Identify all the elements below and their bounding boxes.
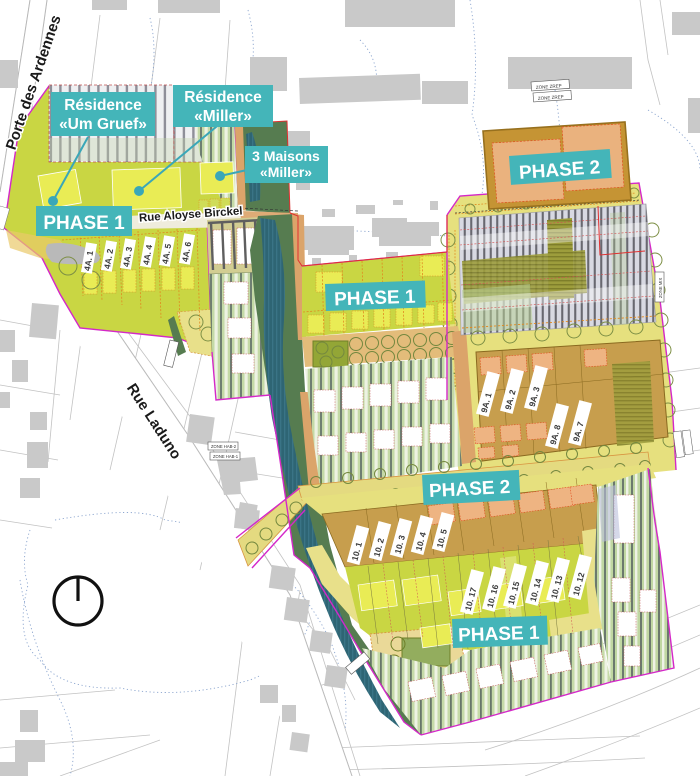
svg-text:ZONE HAB-2: ZONE HAB-2	[211, 444, 237, 449]
svg-text:PHASE 1: PHASE 1	[458, 623, 540, 647]
svg-text:PHASE 1: PHASE 1	[334, 287, 416, 311]
svg-text:ZONE HAB-1: ZONE HAB-1	[213, 454, 239, 459]
svg-text:Résidence: Résidence	[184, 89, 262, 106]
svg-text:«Miller»: «Miller»	[260, 164, 312, 180]
svg-text:«Um Gruef»: «Um Gruef»	[59, 116, 147, 133]
svg-text:ZONE MIX: ZONE MIX	[658, 278, 663, 298]
svg-text:3 Maisons: 3 Maisons	[252, 148, 320, 164]
svg-text:PHASE 1: PHASE 1	[43, 213, 125, 234]
svg-text:Résidence: Résidence	[64, 97, 142, 114]
svg-text:PHASE 2: PHASE 2	[429, 477, 511, 502]
svg-text:«Miller»: «Miller»	[194, 108, 252, 125]
